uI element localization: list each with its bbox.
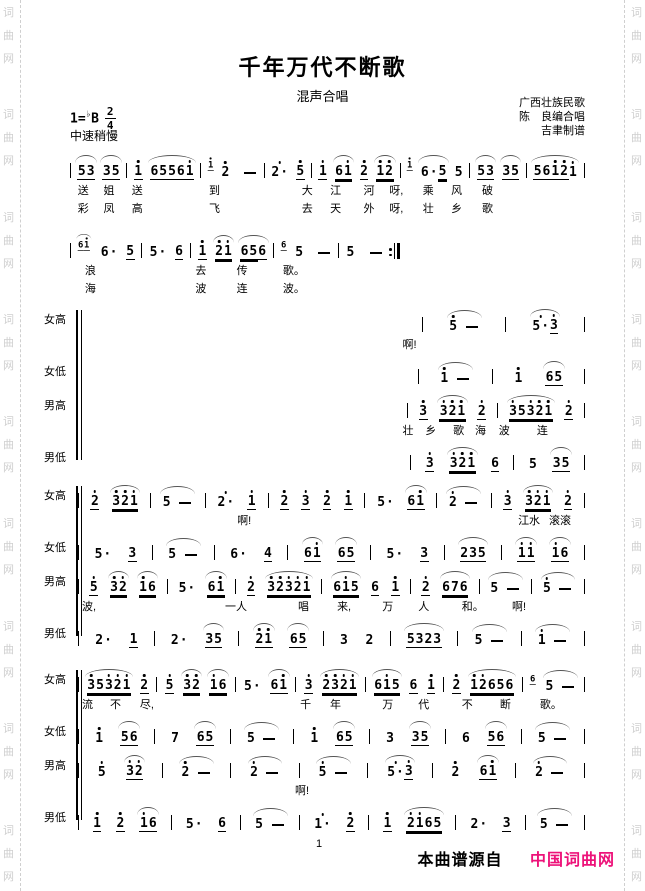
watermark-char: 曲 <box>631 236 642 247</box>
voice-label: 女高 <box>44 484 78 503</box>
watermark-char: 网 <box>631 770 642 781</box>
lyric-word: 天 <box>330 200 341 216</box>
voice-label: 男高 <box>44 754 78 773</box>
lyric-word: 歌。 <box>540 696 562 712</box>
watermark-char: 曲 <box>3 31 14 42</box>
lyric-word: 滚滚 <box>549 512 571 528</box>
lyric-word: 乡 <box>425 422 436 438</box>
lyric-word: 高 <box>132 200 143 216</box>
watermark-char: 词 <box>3 826 14 837</box>
watermark-char: 曲 <box>631 542 642 553</box>
lyric-word: 断 <box>500 696 511 712</box>
watermark-char: 词 <box>631 519 642 530</box>
watermark-char: 词 <box>3 417 14 428</box>
watermark-char: 曲 <box>631 338 642 349</box>
music-system-3: 女高55·3啊!女低1165男高33212353212壮乡歌海波连男低33216… <box>44 300 585 472</box>
watermark-char: 曲 <box>631 133 642 144</box>
watermark-char: 网 <box>631 668 642 679</box>
watermark-char: 网 <box>631 872 642 883</box>
watermark-right-column: 词曲网词曲网词曲网词曲网词曲网词曲网词曲网词曲网词曲网 <box>631 8 642 883</box>
lyric-word: 去 <box>302 200 313 216</box>
watermark-char: 词 <box>631 622 642 633</box>
watermark-char: 曲 <box>3 849 14 860</box>
music-system-4: 女高232152·123215·61233212啊!江水滚滚女低5·356·46… <box>44 476 585 648</box>
notes-row: 33216535 <box>78 438 585 472</box>
lyrics-row: 啊! <box>78 780 585 798</box>
watermark-char: 词 <box>631 724 642 735</box>
lyric-word: 人 <box>418 598 429 614</box>
lyric-word: 去 <box>195 262 206 278</box>
lyric-word: 啊! <box>512 598 526 614</box>
music-system-5: 女高353212532165·61323216156121265665流不尽,千… <box>44 660 585 832</box>
lyric-word: 啊! <box>237 512 251 528</box>
lyric-word: 呀, <box>389 200 403 216</box>
watermark-char: 网 <box>631 565 642 576</box>
lyric-word: 凤 <box>103 200 114 216</box>
notes-row: 15676551653356565 <box>78 712 585 746</box>
watermark-char: 词 <box>631 315 642 326</box>
source-prefix: 本曲谱源自 <box>418 852 503 869</box>
lyric-word: 唱 <box>298 598 309 614</box>
lyrics-row: 海波连波。 <box>70 278 400 296</box>
lyric-word: 送 <box>132 182 143 198</box>
watermark-char: 词 <box>631 8 642 19</box>
watermark-char: 网 <box>3 872 14 883</box>
tempo-marking: 中速稍慢 <box>70 127 118 144</box>
watermark-char: 曲 <box>631 31 642 42</box>
voice-label: 男高 <box>44 394 78 413</box>
watermark-char: 词 <box>3 8 14 19</box>
credit-engraver: 吉聿制谱 <box>519 124 585 138</box>
watermark-char: 曲 <box>631 747 642 758</box>
lyric-word: 不 <box>110 696 121 712</box>
watermark-char: 曲 <box>3 133 14 144</box>
lyric-word: 壮 <box>402 422 413 438</box>
lyrics-row: 波,一人唱来,万人和。啊! <box>78 596 585 614</box>
watermark-char: 曲 <box>3 236 14 247</box>
watermark-char: 词 <box>631 417 642 428</box>
watermark-char: 词 <box>631 826 642 837</box>
lyric-word: 歌 <box>482 200 493 216</box>
lyric-word: 和。 <box>462 598 484 614</box>
voice-label: 女高 <box>44 668 78 687</box>
lyric-word: 歌。 <box>283 262 305 278</box>
watermark-char: 曲 <box>3 747 14 758</box>
watermark-char: 词 <box>3 519 14 530</box>
watermark-char: 网 <box>3 668 14 679</box>
lyric-word: 尽, <box>140 696 154 712</box>
lyric-word: 波。 <box>283 280 305 296</box>
watermark-char: 网 <box>631 361 642 372</box>
notes-row: 55·3 <box>78 300 585 334</box>
lyric-word: 流 <box>82 696 93 712</box>
lyric-word: 壮 <box>423 200 434 216</box>
song-title: 千年万代不断歌 <box>0 50 645 82</box>
watermark-char: 曲 <box>3 645 14 656</box>
voice-label: 女高 <box>44 308 78 327</box>
watermark-char: 网 <box>631 259 642 270</box>
sheet-music-page: 词曲网词曲网词曲网词曲网词曲网词曲网词曲网词曲网词曲网 词曲网词曲网词曲网词曲网… <box>0 0 645 891</box>
lyric-word: 代 <box>418 696 429 712</box>
lyric-word: 一人 <box>225 598 247 614</box>
watermark-char: 词 <box>3 110 14 121</box>
credit-origin: 广西壮族民歌 <box>519 96 585 110</box>
lyric-word: 来, <box>337 598 351 614</box>
lyric-word: 河 <box>364 182 375 198</box>
lyric-word: 啊! <box>402 336 416 352</box>
music-system-1: 5335165561122·516121216·55533556121送姐送到大… <box>70 146 585 216</box>
watermark-char: 曲 <box>3 440 14 451</box>
right-dashed-border <box>624 0 625 891</box>
notes-row: 232152·123215·61233212 <box>78 476 585 510</box>
notes-row: 5322255·32612 <box>78 746 585 780</box>
voice-label: 女低 <box>44 536 78 555</box>
watermark-char: 网 <box>631 463 642 474</box>
watermark-char: 词 <box>3 213 14 224</box>
lyric-word: 外 <box>364 200 375 216</box>
source-site-link[interactable]: 中国词曲网 <box>530 852 615 869</box>
lyric-word: 呀, <box>389 182 403 198</box>
key-text: 1=♭B <box>70 110 99 126</box>
lyric-word: 传 <box>237 262 248 278</box>
lyric-word: 千 <box>300 696 311 712</box>
lyric-word: 啊! <box>295 782 309 798</box>
lyric-word: 乡 <box>451 200 462 216</box>
lyric-word: 破 <box>482 182 493 198</box>
watermark-char: 词 <box>3 724 14 735</box>
watermark-char: 词 <box>3 315 14 326</box>
notes-row: 532165·6123232161561267655 <box>78 562 585 596</box>
watermark-char: 网 <box>3 463 14 474</box>
watermark-char: 词 <box>3 622 14 633</box>
watermark-left-column: 词曲网词曲网词曲网词曲网词曲网词曲网词曲网词曲网词曲网 <box>3 8 14 883</box>
watermark-char: 词 <box>631 213 642 224</box>
music-system-2: 616·55·6121656655浪去传歌。海波连波。 <box>70 226 400 296</box>
lyric-word: 万 <box>382 696 393 712</box>
watermark-char: 网 <box>3 361 14 372</box>
watermark-char: 网 <box>3 770 14 781</box>
lyric-word: 江水 <box>518 512 540 528</box>
notes-row: 1165 <box>78 352 585 386</box>
voice-label: 男低 <box>44 622 78 641</box>
watermark-char: 网 <box>3 156 14 167</box>
lyric-word: 大 <box>302 182 313 198</box>
watermark-char: 网 <box>631 156 642 167</box>
lyric-word: 海 <box>85 280 96 296</box>
watermark-char: 曲 <box>631 849 642 860</box>
lyrics-row: 壮乡歌海波连 <box>78 420 585 438</box>
notes-row: 353212532165·61323216156121265665 <box>78 660 585 694</box>
lyric-word: 波 <box>195 280 206 296</box>
voice-label: 男高 <box>44 570 78 589</box>
watermark-char: 曲 <box>631 645 642 656</box>
voice-label: 女低 <box>44 360 78 379</box>
notes-row: 616·55·6121656655 <box>70 226 400 260</box>
lyrics-row: 啊! <box>78 334 585 352</box>
lyric-word: 乘 <box>423 182 434 198</box>
watermark-char: 词 <box>631 110 642 121</box>
lyric-word: 飞 <box>209 200 220 216</box>
watermark-char: 曲 <box>3 542 14 553</box>
notes-row: 2·12·35216532532351 <box>78 614 585 648</box>
lyrics-row: 流不尽,千年万代不断歌。 <box>78 694 585 712</box>
lyric-word: 歌 <box>453 422 464 438</box>
notes-row: 12165·651·2121652·35 <box>78 798 585 832</box>
voice-label: 男低 <box>44 446 78 465</box>
lyric-word: 连 <box>537 422 548 438</box>
lyric-word: 年 <box>330 696 341 712</box>
voice-label: 男低 <box>44 806 78 825</box>
watermark-char: 网 <box>631 54 642 65</box>
credits-block: 广西壮族民歌 陈 良编合唱 吉聿制谱 <box>519 96 585 138</box>
watermark-char: 网 <box>3 54 14 65</box>
lyric-word: 万 <box>382 598 393 614</box>
source-line: 本曲谱源自 中国词曲网 <box>0 846 615 870</box>
lyric-word: 风 <box>451 182 462 198</box>
credit-arranger: 陈 良编合唱 <box>519 110 585 124</box>
lyric-word: 波 <box>499 422 510 438</box>
lyrics-row: 彩凤高飞去天外呀,壮乡歌 <box>70 198 585 216</box>
left-dashed-border <box>20 0 21 891</box>
notes-row: 5·356·461655·32351116 <box>78 528 585 562</box>
watermark-char: 曲 <box>3 338 14 349</box>
watermark-char: 网 <box>3 565 14 576</box>
lyric-word: 浪 <box>85 262 96 278</box>
lyric-word: 波, <box>82 598 96 614</box>
lyric-word: 海 <box>475 422 486 438</box>
lyric-word: 江 <box>330 182 341 198</box>
notes-row: 33212353212 <box>78 386 585 420</box>
lyric-word: 送 <box>78 182 89 198</box>
repeat-end-sign <box>389 243 400 259</box>
lyrics-row: 浪去传歌。 <box>70 260 400 278</box>
watermark-char: 网 <box>3 259 14 270</box>
notes-row: 5335165561122·516121216·55533556121 <box>70 146 585 180</box>
lyric-word: 彩 <box>78 200 89 216</box>
lyrics-row: 啊!江水滚滚 <box>78 510 585 528</box>
watermark-char: 曲 <box>631 440 642 451</box>
lyric-word: 不 <box>462 696 473 712</box>
lyric-word: 到 <box>209 182 220 198</box>
lyric-word: 姐 <box>103 182 114 198</box>
lyric-word: 连 <box>237 280 248 296</box>
lyrics-row: 送姐送到大江河呀,乘风破 <box>70 180 585 198</box>
voice-label: 女低 <box>44 720 78 739</box>
